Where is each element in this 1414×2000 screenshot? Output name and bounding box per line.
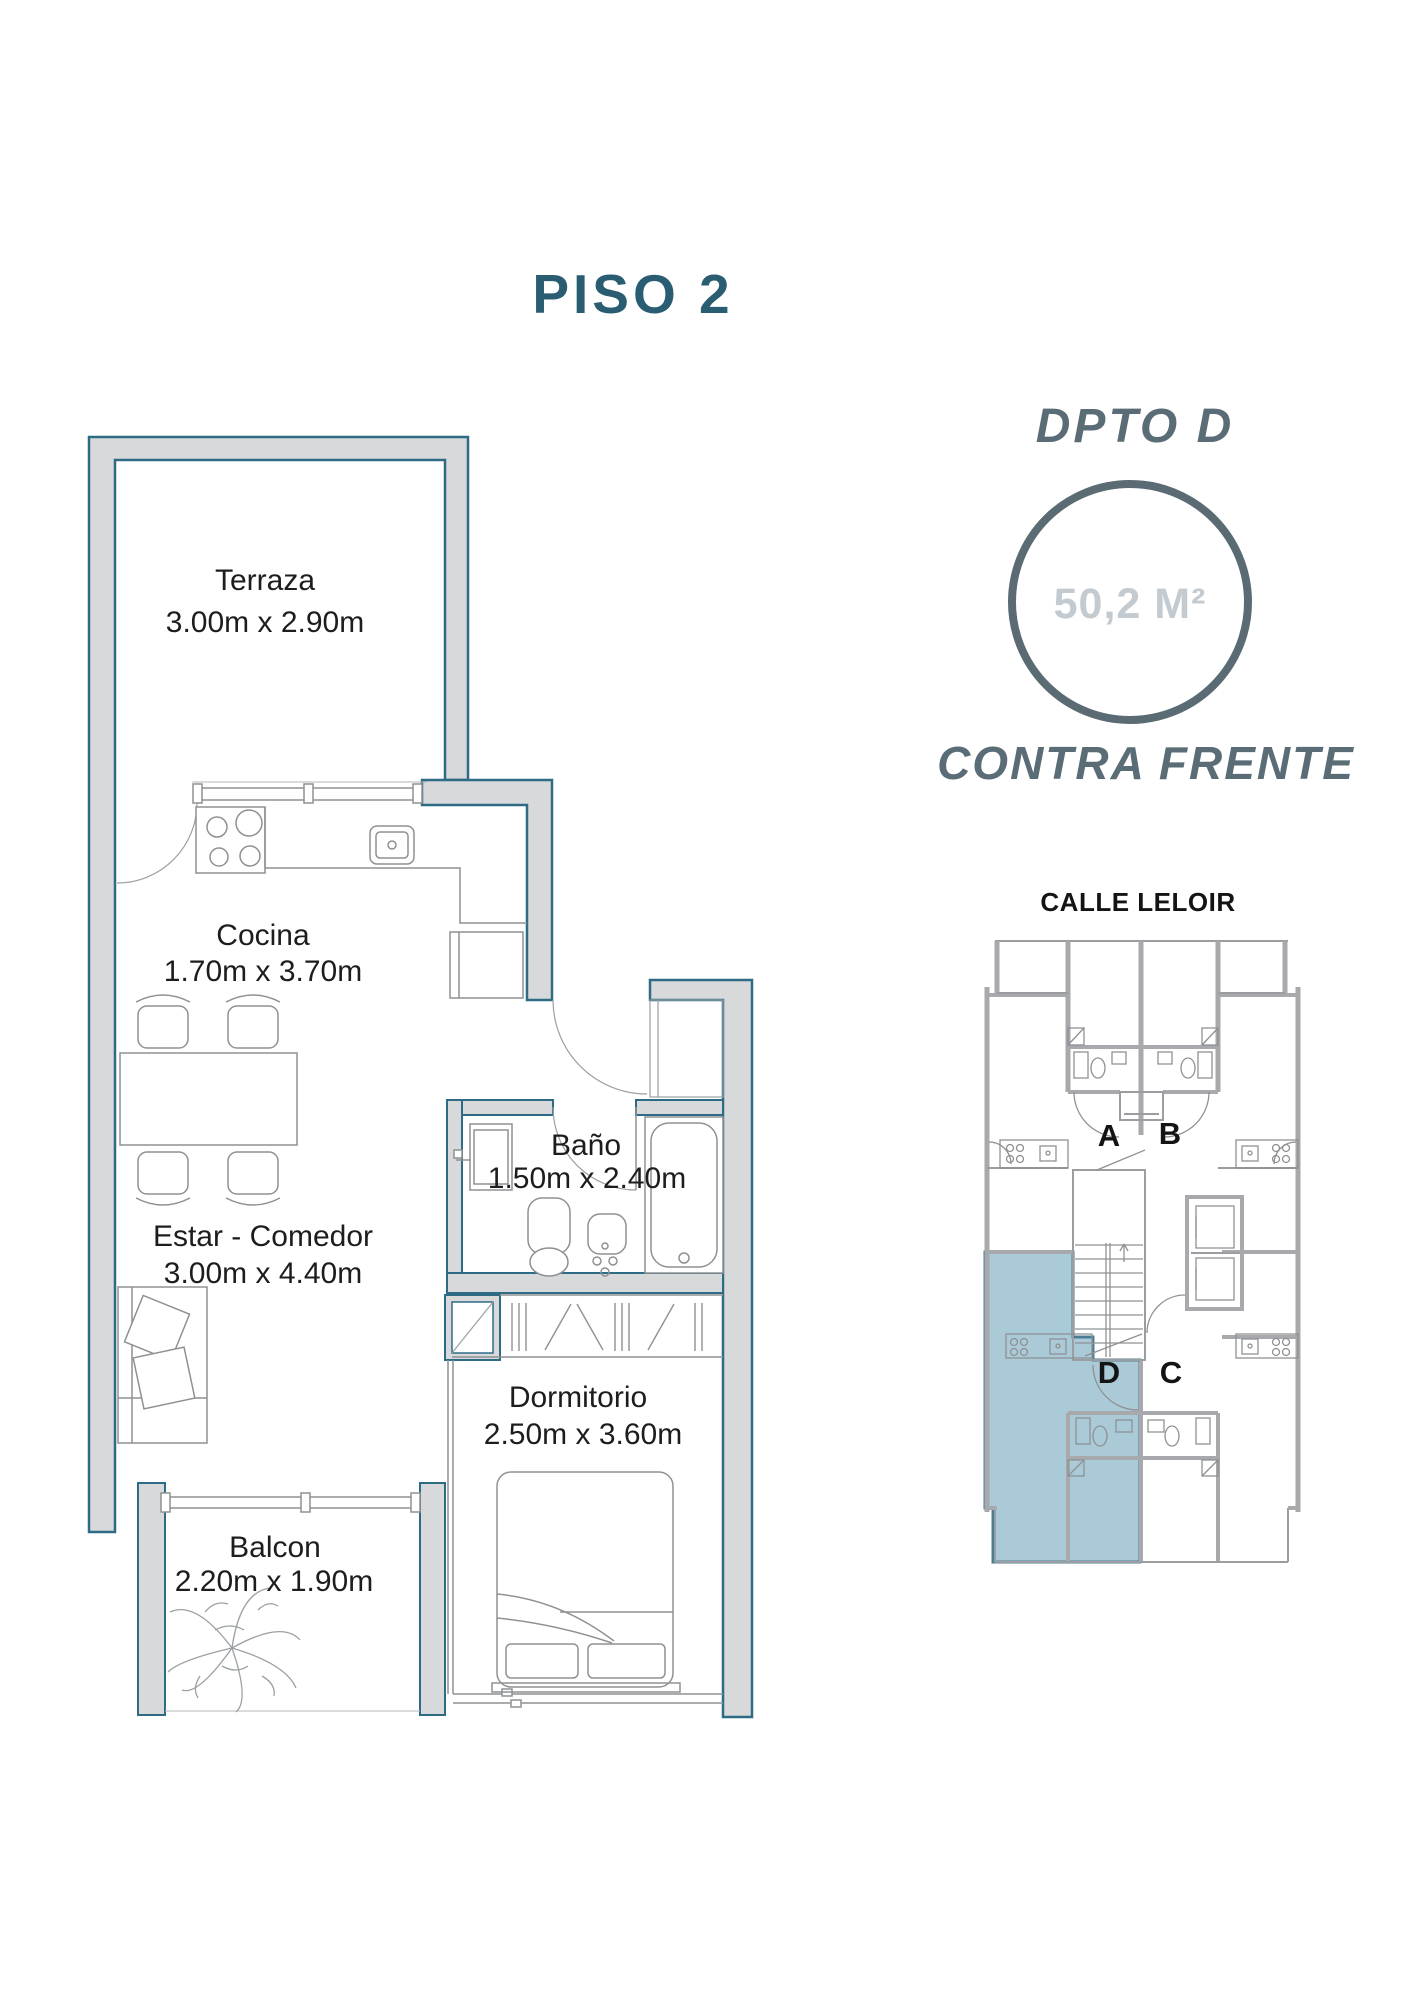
entry-door-arc: [553, 1000, 647, 1094]
terrace-door-arc: [117, 803, 197, 883]
unit-orientation: CONTRA FRENTE: [937, 737, 1355, 789]
room-label-estar-comedor: Estar - Comedor: [153, 1220, 373, 1253]
sofa: [118, 1287, 207, 1443]
pillow: [588, 1644, 665, 1678]
keyplan-street-label: CALLE LELOIR: [1040, 887, 1235, 917]
bed: [492, 1472, 680, 1692]
bathtub: [645, 1117, 723, 1273]
balcony-column-right: [420, 1483, 445, 1715]
keyplan-elevators: [1187, 1197, 1242, 1309]
kitchen-counter: [265, 807, 527, 923]
room-dims-cocina: 1.70m x 3.70m: [164, 955, 362, 988]
room-label-bano: Baño: [551, 1129, 621, 1162]
toilet: [528, 1198, 570, 1276]
balcony-column-left: [138, 1483, 165, 1715]
chair: [228, 1152, 278, 1194]
keyplan-unit-b-label: B: [1159, 1116, 1181, 1151]
unit-area: 50,2 M²: [1054, 580, 1207, 628]
room-label-balcon: Balcon: [229, 1531, 321, 1564]
keyplan-stairs: [1073, 1150, 1145, 1360]
fridge: [450, 932, 523, 998]
stove: [196, 807, 265, 873]
room-dims-estar-comedor: 3.00m x 4.40m: [164, 1257, 362, 1290]
room-dims-dormitorio: 2.50m x 3.60m: [484, 1418, 682, 1451]
room-dims-balcon: 2.20m x 1.90m: [175, 1565, 373, 1598]
unit-name: DPTO D: [1036, 400, 1234, 453]
room-label-dormitorio: Dormitorio: [509, 1381, 647, 1414]
room-dims-terraza: 3.00m x 2.90m: [166, 606, 364, 639]
key-plan: CALLE LELOIR: [985, 887, 1298, 1562]
chair: [138, 1006, 188, 1048]
chair: [228, 1006, 278, 1048]
kitchen-window: [192, 782, 427, 803]
plant: [168, 1588, 300, 1712]
keyplan-unit-c-label: C: [1160, 1355, 1182, 1390]
apartment-floor-plan: Terraza 3.00m x 2.90m Cocina 1.70m x 3.7…: [89, 437, 752, 1717]
dining-table: [120, 1053, 297, 1145]
keyplan-unit-d-highlight: [985, 1252, 1140, 1562]
dining-set: [120, 995, 297, 1205]
room-label-cocina: Cocina: [216, 919, 310, 952]
floor-plan-page: PISO 2: [0, 0, 1414, 2000]
unit-info-panel: DPTO D 50,2 M² CONTRA FRENTE: [937, 400, 1355, 789]
bidet: [588, 1214, 626, 1276]
kitchen-sink: [370, 826, 414, 864]
duct-shaft: [650, 1000, 723, 1097]
closet-box: [445, 1295, 500, 1360]
keyplan-unit-a-label: A: [1098, 1118, 1120, 1153]
pillow: [506, 1644, 578, 1678]
keyplan-unit-d-label: D: [1098, 1355, 1120, 1390]
room-dims-bano: 1.50m x 2.40m: [488, 1162, 686, 1195]
bedroom-partition: [448, 1360, 453, 1694]
chair: [138, 1152, 188, 1194]
page-title: PISO 2: [532, 263, 733, 325]
room-label-terraza: Terraza: [215, 564, 315, 597]
